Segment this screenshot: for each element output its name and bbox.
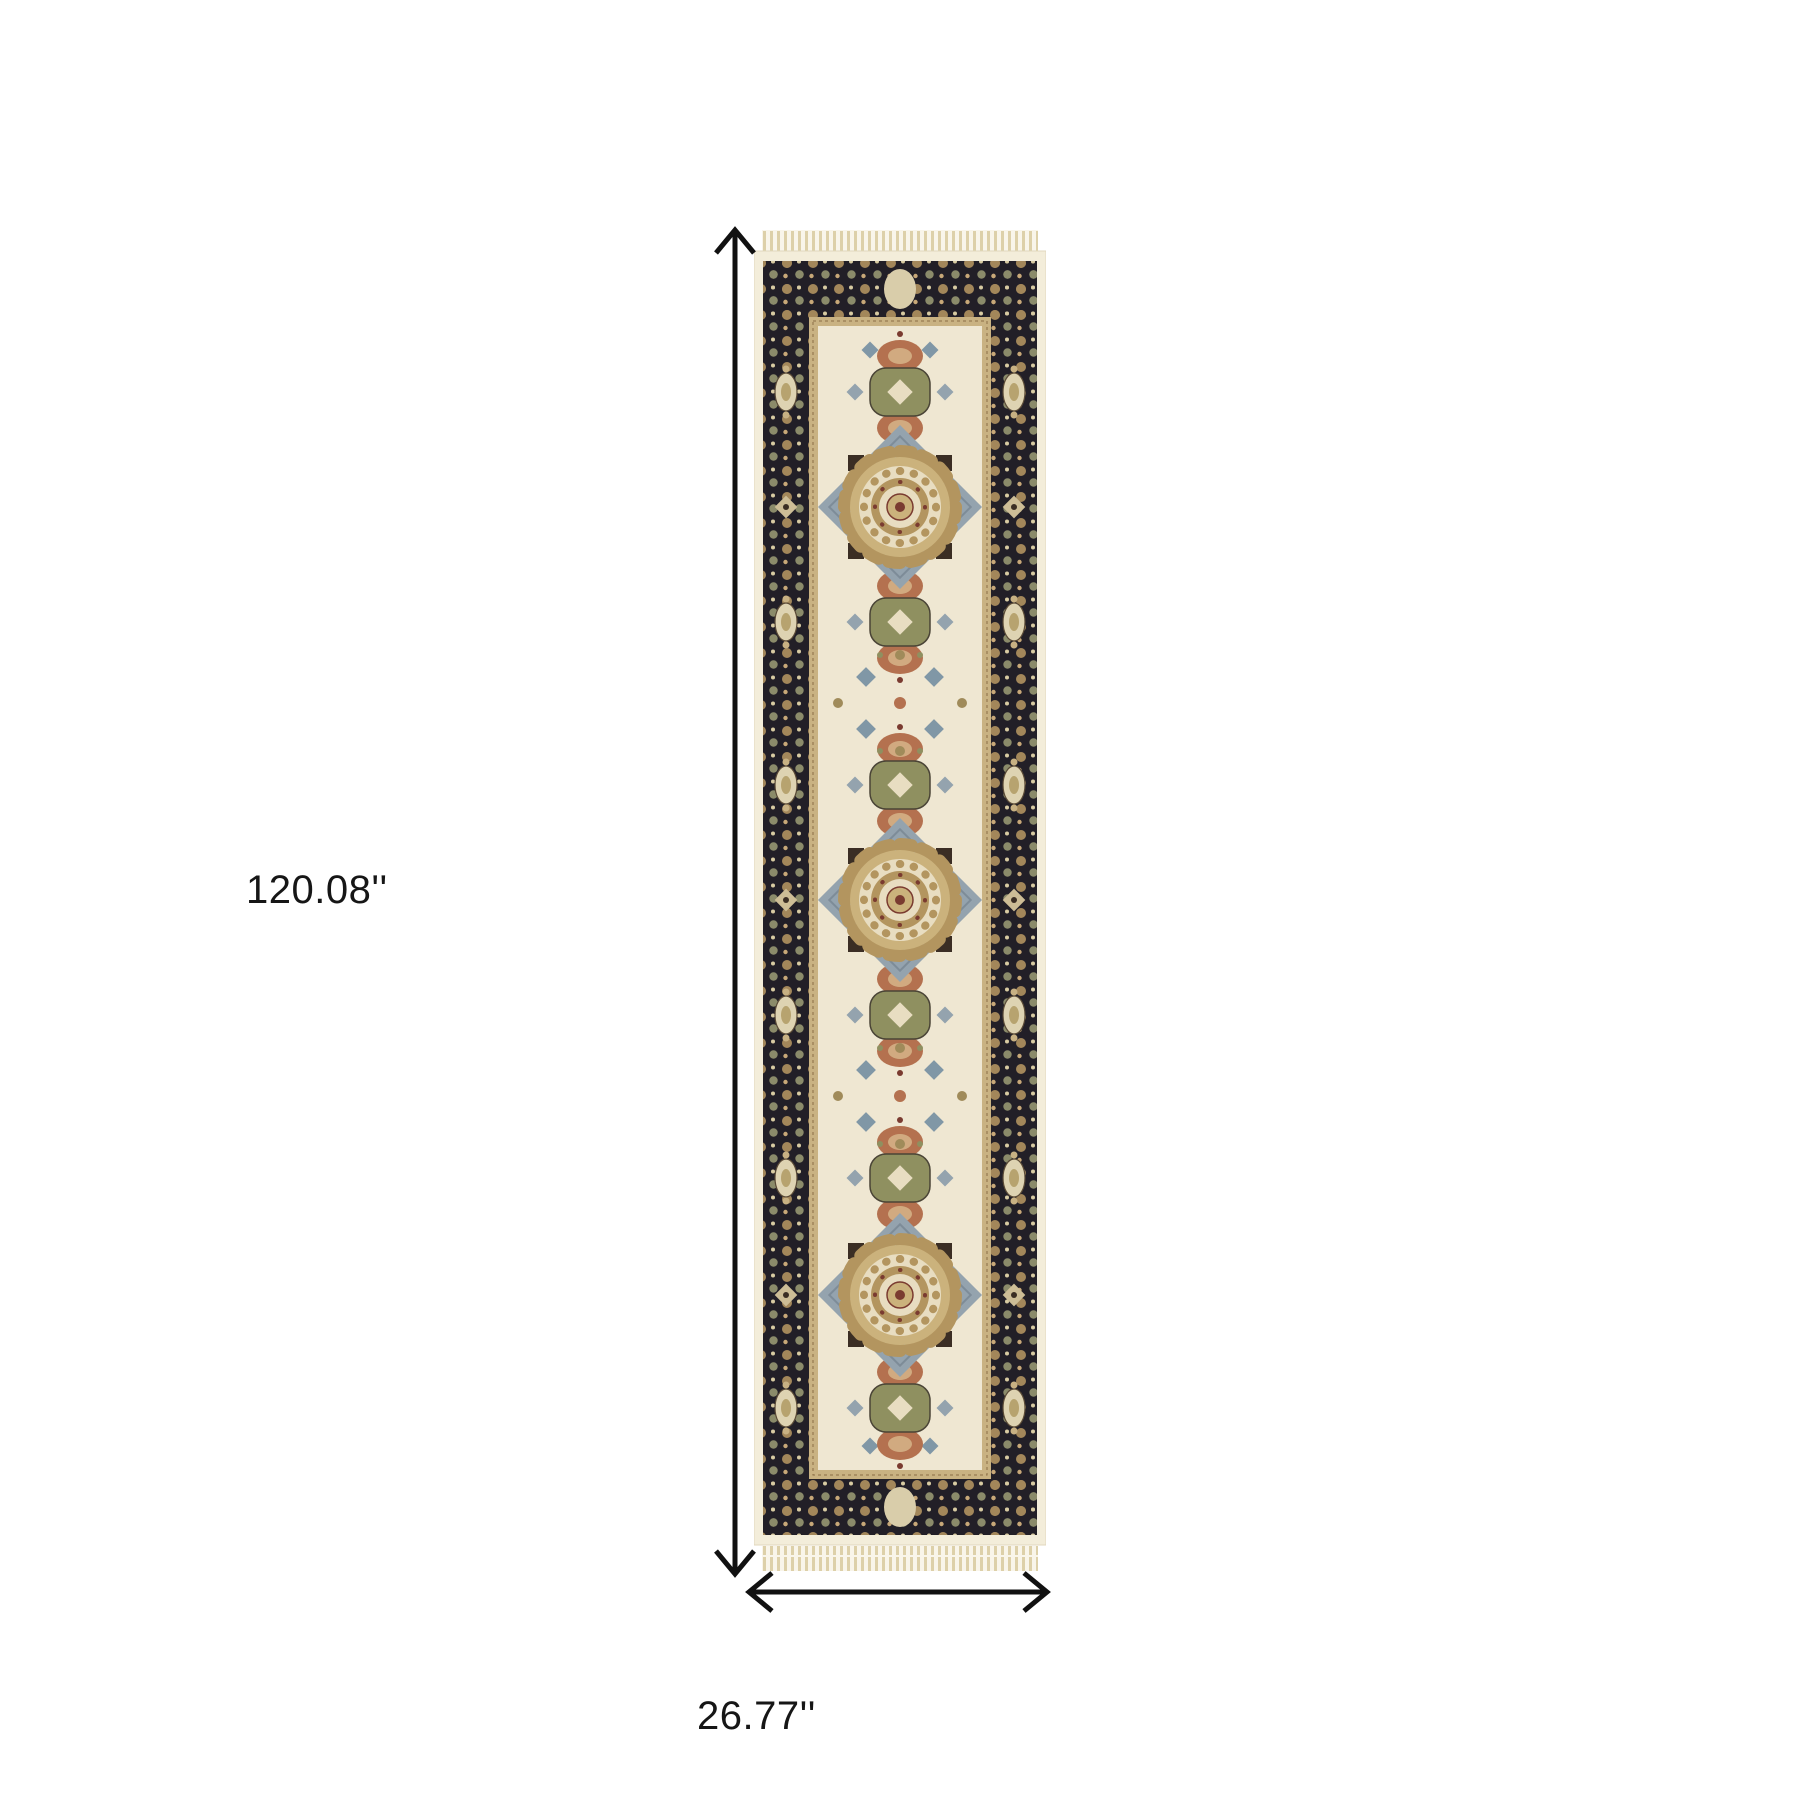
width-dimension-arrow — [749, 1573, 1047, 1611]
height-dimension-label: 120.08'' — [246, 868, 388, 912]
rug-field-motifs — [818, 331, 982, 1469]
width-dimension-label: 26.77'' — [697, 1694, 816, 1738]
product-dimension-diagram: 120.08'' 26.77'' — [0, 0, 1800, 1800]
height-dimension-arrow — [716, 230, 754, 1574]
rug-fringe-top — [762, 230, 1038, 251]
rug-fringe-bottom — [762, 1546, 1038, 1571]
rug-product-image — [754, 230, 1046, 1572]
